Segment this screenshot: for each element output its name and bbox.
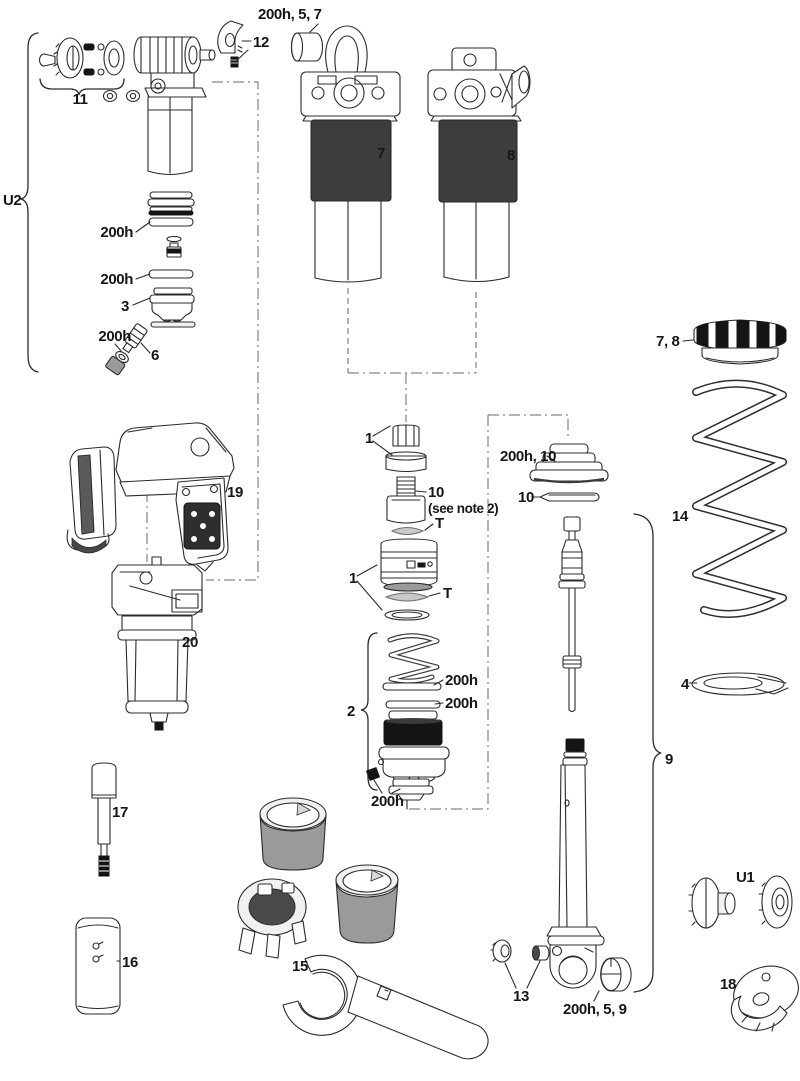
part-5-7-bushing: [292, 33, 323, 61]
part-2-oring-a: [383, 683, 441, 690]
label-wiper-group: 200h, 10: [500, 448, 556, 465]
label-air-can-group: 1: [349, 570, 357, 587]
label-u1-knobs: U1: [736, 869, 754, 886]
glide-ring-200h-b: [149, 270, 193, 278]
label-fittings: 13: [513, 988, 529, 1005]
part-15-wrench: [283, 955, 488, 1059]
part-15-sleeve-cup-a: [260, 798, 326, 870]
label-spring-retainer: 4: [681, 676, 690, 693]
part-14-coil-spring: [696, 384, 783, 614]
part-9-damper-shaft: [559, 517, 585, 712]
part-3-seal-head: [150, 288, 195, 327]
label-piston-oring-b: 200h: [445, 695, 478, 712]
label-seal-plug: 10: [428, 484, 444, 501]
part-16-mount-plate: [76, 918, 120, 1014]
part-10-seal-plug: [387, 477, 425, 523]
remote-damper-head: [134, 37, 215, 175]
label-preload-ring: 7, 8: [656, 333, 679, 350]
part-1-valve-cap: [386, 425, 426, 472]
gland-stack: [148, 192, 194, 215]
label-bottom-cup: 18: [720, 976, 736, 993]
part-2-piston: [367, 711, 449, 782]
part-7-shock-assembly: [301, 26, 400, 282]
label-gland-ring-a: 200h: [100, 224, 133, 241]
part-15-sleeve-cup-b: [336, 865, 398, 943]
part-13-fittings: [491, 940, 549, 962]
t-ring-lower: [385, 593, 429, 620]
label-seal-head: 3: [121, 298, 129, 315]
label-t-ring-lower: T: [443, 585, 452, 602]
part-1-air-can-top: [381, 539, 437, 591]
label-piston-oring-a: 200h: [445, 672, 478, 689]
label-wrench-group: 15: [292, 958, 308, 975]
glide-ring-200h-a: [149, 218, 193, 226]
part-4-spring-retainer: [692, 673, 788, 695]
label-piston-seal: 200h: [371, 793, 404, 810]
label-valve-cap-group: 1: [365, 430, 373, 447]
label-top-bushing: 200h, 5, 7: [258, 6, 322, 23]
part-15-collar: [238, 879, 306, 958]
part-11-adjuster-knob-assembly: [40, 38, 140, 102]
part-2-group-brace: [361, 633, 377, 790]
label-knob-group: 11: [72, 91, 87, 108]
label-wiper-ring: 10: [518, 489, 534, 506]
label-plate: 16: [122, 954, 138, 971]
label-lever-clamp: 12: [253, 34, 269, 51]
t-ring-upper: [392, 528, 423, 535]
exploded-diagram-canvas: U2 11 12 200h, 5, 7 200h 200h 3 200h 6 7…: [0, 0, 800, 1081]
part-5-9-eyelet-bushing: [601, 958, 631, 991]
label-valve-oring: 200h: [98, 328, 131, 345]
part-19-remote-module: [116, 423, 234, 571]
label-u2-group: U2: [3, 192, 21, 209]
part-2-negative-spring: [390, 636, 437, 681]
part-9-group-brace: [634, 514, 661, 992]
label-tool-shaft: 17: [112, 804, 128, 821]
label-damper-body: 20: [182, 634, 198, 651]
label-shaft-group: 9: [665, 751, 673, 768]
part-2-oring-b: [386, 701, 440, 708]
part-18-bottom-cup: [727, 958, 800, 1031]
label-coil-spring: 14: [672, 508, 689, 525]
label-piston-group: 2: [347, 703, 355, 720]
label-t-ring-upper: T: [435, 515, 444, 532]
label-gland-ring-b: 200h: [100, 271, 133, 288]
label-shock-left: 7: [377, 145, 385, 162]
part-9-damper-body: [547, 739, 604, 988]
small-shim-and-valve: [167, 236, 181, 257]
part-8-shock-assembly: [428, 48, 530, 282]
label-valve: 6: [151, 347, 159, 364]
u2-group-brace: [21, 33, 38, 372]
part-19-battery-cover: [67, 447, 116, 553]
label-eyelet-bushing: 200h, 5, 9: [563, 1001, 627, 1018]
part-10-ring: [540, 493, 599, 501]
label-shock-right: 8: [507, 147, 515, 164]
label-seal-plug-note: (see note 2): [428, 501, 498, 516]
label-remote-module: 19: [227, 484, 243, 501]
part-12-lever-clamp: [218, 21, 243, 67]
part-7-8-preload-adjuster: [694, 318, 786, 364]
